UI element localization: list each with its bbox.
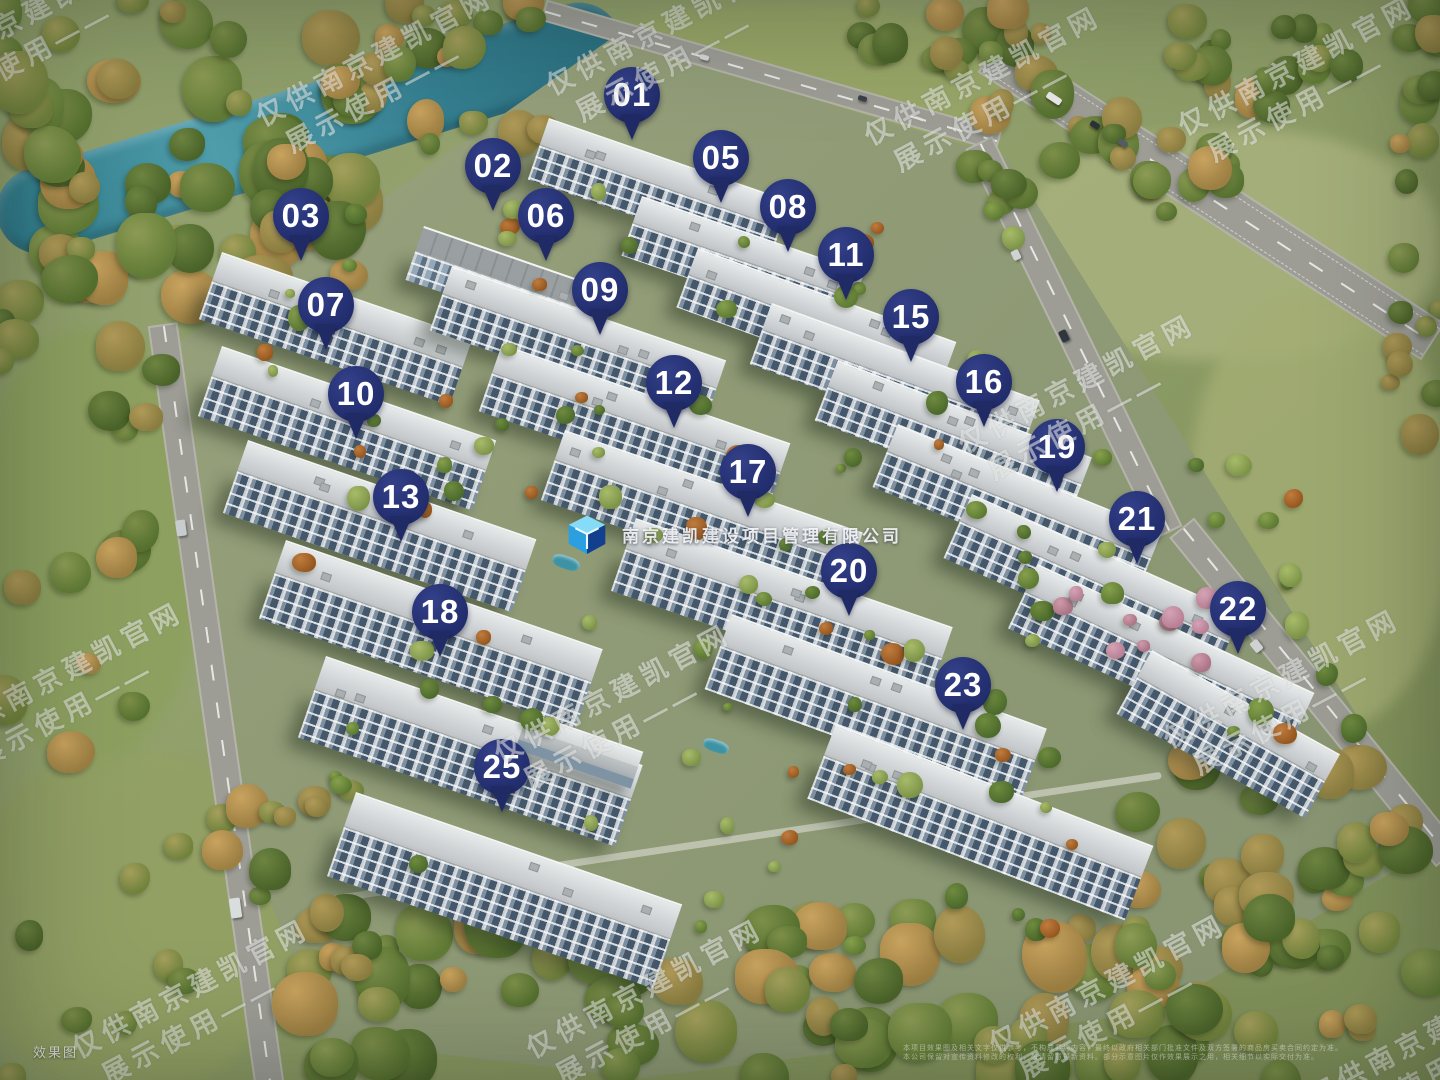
marker-tail bbox=[1046, 466, 1068, 492]
tree bbox=[592, 447, 605, 457]
tree bbox=[1208, 512, 1225, 528]
roof-unit bbox=[310, 398, 322, 409]
tree bbox=[854, 958, 903, 1004]
marker-tail bbox=[1227, 628, 1249, 654]
tree bbox=[843, 764, 856, 775]
tree bbox=[1106, 642, 1125, 659]
tree bbox=[723, 703, 733, 711]
tree bbox=[1123, 614, 1136, 626]
roof-unit bbox=[891, 682, 903, 693]
tree bbox=[864, 630, 875, 639]
tree bbox=[843, 936, 866, 955]
roof-unit bbox=[872, 381, 884, 392]
tree bbox=[202, 830, 243, 870]
roof-unit bbox=[682, 478, 694, 489]
tree bbox=[695, 920, 707, 932]
tree bbox=[117, 0, 149, 13]
roof-unit bbox=[868, 319, 880, 330]
tree bbox=[69, 172, 101, 203]
tree bbox=[160, 1, 187, 23]
tree bbox=[142, 354, 181, 386]
roof-unit bbox=[268, 289, 280, 300]
roof-unit bbox=[941, 453, 953, 464]
tree bbox=[268, 365, 279, 376]
tree bbox=[1248, 698, 1274, 725]
tree bbox=[1344, 1004, 1377, 1034]
building-marker-11[interactable]: 11 bbox=[818, 227, 874, 300]
tree bbox=[341, 954, 373, 982]
tree bbox=[756, 592, 772, 606]
tree bbox=[1306, 45, 1333, 72]
tree bbox=[1359, 912, 1400, 953]
tree bbox=[991, 169, 1027, 200]
roof-unit bbox=[465, 279, 477, 290]
marker-tail bbox=[621, 114, 643, 140]
building-marker-18[interactable]: 18 bbox=[412, 584, 468, 657]
tree bbox=[1031, 23, 1052, 44]
tree bbox=[1387, 351, 1413, 377]
tree bbox=[476, 630, 491, 645]
marker-tail bbox=[589, 309, 611, 335]
building-marker-16[interactable]: 16 bbox=[956, 354, 1012, 427]
building-marker-10[interactable]: 10 bbox=[328, 366, 384, 439]
disclaimer-text: 本项目效果图及相关文字仅供参考，不构成要约内容，最终以政府相关部门批准文件及双方… bbox=[903, 1044, 1439, 1062]
tree bbox=[116, 1011, 137, 1034]
tree bbox=[50, 552, 91, 593]
tree bbox=[345, 204, 367, 224]
company-name: 南京建凯建设项目管理有限公司 bbox=[622, 522, 902, 547]
tree bbox=[1254, 67, 1277, 92]
tree bbox=[42, 16, 80, 52]
tree bbox=[88, 391, 130, 431]
tree bbox=[830, 1008, 869, 1041]
tree bbox=[420, 133, 440, 155]
building-marker-21[interactable]: 21 bbox=[1109, 491, 1165, 564]
tree bbox=[720, 817, 735, 834]
tree bbox=[474, 437, 494, 454]
disclaimer-line1: 本项目效果图及相关文字仅供参考，不构成要约内容，最终以政府相关部门批准文件及双方… bbox=[903, 1044, 1439, 1053]
roof-unit bbox=[320, 571, 332, 582]
building-marker-22[interactable]: 22 bbox=[1210, 581, 1266, 654]
tree bbox=[1162, 606, 1183, 628]
marker-tail bbox=[710, 177, 732, 203]
tree bbox=[930, 36, 963, 69]
tree bbox=[439, 394, 453, 408]
roof-unit bbox=[804, 266, 816, 277]
roof-unit bbox=[482, 724, 494, 735]
marker-tail bbox=[491, 786, 513, 812]
tree bbox=[1093, 449, 1113, 466]
building-marker-19[interactable]: 19 bbox=[1029, 419, 1085, 492]
tree bbox=[989, 781, 1014, 803]
tree bbox=[1156, 202, 1177, 221]
building-marker-13[interactable]: 13 bbox=[373, 469, 429, 542]
tree bbox=[836, 464, 847, 473]
tree bbox=[302, 10, 359, 67]
tree bbox=[716, 300, 737, 318]
tree bbox=[599, 485, 622, 509]
tree bbox=[495, 418, 509, 431]
roof-unit bbox=[870, 676, 882, 687]
rendering-type-label: 效果图 bbox=[33, 1042, 78, 1061]
tree bbox=[498, 231, 517, 246]
roof-unit bbox=[689, 221, 701, 232]
tree bbox=[444, 481, 463, 501]
tree bbox=[1407, 123, 1439, 158]
roof-unit bbox=[782, 644, 794, 655]
building-marker-15[interactable]: 15 bbox=[883, 289, 939, 362]
tree bbox=[768, 861, 781, 873]
tree bbox=[116, 213, 177, 278]
tree bbox=[1192, 619, 1209, 634]
company-logo-icon bbox=[562, 510, 612, 558]
tree bbox=[440, 967, 466, 992]
tree bbox=[1069, 586, 1082, 600]
tree bbox=[1188, 458, 1204, 472]
marker-tail bbox=[952, 704, 974, 730]
tree bbox=[310, 1038, 354, 1077]
marker-tail bbox=[429, 631, 451, 657]
roof-unit bbox=[779, 315, 791, 326]
tree bbox=[4, 570, 41, 605]
tree bbox=[1168, 4, 1207, 39]
marker-tail bbox=[835, 274, 857, 300]
roof-unit bbox=[1069, 551, 1081, 562]
tree bbox=[358, 987, 401, 1022]
marker-tail bbox=[900, 336, 922, 362]
tree bbox=[168, 968, 199, 994]
tree bbox=[831, 1064, 858, 1080]
building-marker-23[interactable]: 23 bbox=[935, 657, 991, 730]
tree bbox=[129, 403, 163, 430]
tree bbox=[292, 553, 316, 572]
tree bbox=[274, 807, 296, 826]
tree bbox=[437, 457, 452, 472]
roof-unit bbox=[414, 336, 426, 347]
building-marker-05[interactable]: 05 bbox=[693, 130, 749, 203]
marker-tail bbox=[345, 413, 367, 439]
building-marker-06[interactable]: 06 bbox=[518, 188, 574, 261]
tree bbox=[501, 973, 539, 1007]
tree bbox=[765, 967, 809, 1012]
tree bbox=[1330, 49, 1363, 83]
tree bbox=[788, 766, 799, 777]
tree bbox=[1110, 146, 1136, 170]
roof-unit bbox=[569, 447, 581, 458]
roof-unit bbox=[617, 344, 629, 355]
tree bbox=[844, 448, 862, 467]
roof-unit bbox=[436, 344, 448, 355]
tree bbox=[1191, 653, 1211, 673]
marker-tail bbox=[535, 235, 557, 261]
tree bbox=[571, 345, 584, 356]
tree bbox=[310, 894, 343, 932]
marker-tail bbox=[777, 226, 799, 252]
marker-tail bbox=[1126, 538, 1148, 564]
tree bbox=[584, 815, 598, 831]
tree bbox=[1271, 15, 1296, 39]
tree bbox=[420, 679, 440, 699]
roof-unit bbox=[594, 150, 606, 161]
tree bbox=[1401, 414, 1439, 456]
tree bbox=[1285, 612, 1309, 639]
tree bbox=[591, 183, 607, 201]
tree bbox=[412, 5, 437, 27]
tree bbox=[1430, 300, 1440, 317]
roof-unit bbox=[354, 693, 366, 704]
roof-unit bbox=[449, 440, 461, 451]
roof-unit bbox=[1047, 545, 1059, 556]
tree bbox=[1253, 91, 1290, 123]
tree bbox=[1243, 894, 1295, 943]
tree bbox=[0, 1063, 26, 1080]
tree bbox=[934, 905, 985, 963]
tree bbox=[0, 0, 22, 32]
vehicle bbox=[175, 519, 187, 536]
tree bbox=[1164, 42, 1197, 70]
tree bbox=[621, 237, 638, 255]
tree bbox=[520, 708, 543, 732]
roof-unit bbox=[1224, 706, 1237, 718]
tree bbox=[532, 278, 547, 290]
tree bbox=[1144, 960, 1175, 991]
tree bbox=[1388, 301, 1413, 324]
building-marker-07[interactable]: 07 bbox=[298, 277, 354, 350]
tree bbox=[1137, 640, 1150, 652]
tree bbox=[1101, 582, 1124, 604]
tree bbox=[180, 163, 235, 212]
marker-tail bbox=[290, 235, 312, 261]
tree bbox=[257, 344, 272, 360]
tree bbox=[351, 1027, 410, 1080]
tree bbox=[1053, 597, 1074, 615]
tree bbox=[1115, 923, 1157, 968]
tree bbox=[989, 89, 1014, 118]
roof-unit bbox=[557, 290, 569, 301]
tree bbox=[606, 994, 644, 1028]
tree bbox=[1417, 71, 1440, 100]
tree bbox=[285, 289, 295, 297]
tree bbox=[1109, 990, 1165, 1038]
building-marker-17[interactable]: 17 bbox=[720, 444, 776, 517]
tree bbox=[1157, 127, 1186, 153]
tree bbox=[995, 748, 1011, 762]
tree bbox=[97, 59, 138, 99]
tree bbox=[675, 1000, 737, 1062]
roof-unit bbox=[968, 467, 980, 478]
tree bbox=[1395, 169, 1418, 193]
company-logo-row: 南京建凯建设项目管理有限公司 bbox=[562, 510, 902, 558]
roof-unit bbox=[606, 391, 618, 402]
tree bbox=[1416, 316, 1437, 337]
marker-tail bbox=[482, 185, 504, 211]
tree bbox=[1279, 563, 1302, 587]
tree bbox=[272, 972, 337, 1036]
tree bbox=[1388, 243, 1419, 272]
building-marker-09[interactable]: 09 bbox=[572, 262, 628, 335]
tree bbox=[1390, 134, 1410, 152]
building-marker-25[interactable]: 25 bbox=[474, 739, 530, 812]
tree bbox=[347, 486, 370, 512]
tree bbox=[738, 236, 750, 248]
tree bbox=[582, 615, 597, 630]
tree bbox=[120, 863, 150, 895]
tree bbox=[354, 445, 366, 458]
tree bbox=[881, 643, 904, 666]
tree bbox=[440, 0, 473, 27]
building-marker-12[interactable]: 12 bbox=[646, 355, 702, 428]
tree bbox=[501, 343, 517, 356]
tree bbox=[1025, 634, 1040, 648]
tree bbox=[1319, 1010, 1345, 1038]
tree bbox=[525, 486, 537, 499]
tree bbox=[945, 883, 968, 909]
disclaimer-line2: 本公司保留对宣传资料修改的权利，敬请留意最新资料。部分示意图片仅作效果展示之用，… bbox=[903, 1053, 1439, 1062]
tree bbox=[848, 697, 862, 713]
building-marker-02[interactable]: 02 bbox=[465, 138, 521, 211]
tree bbox=[459, 111, 488, 135]
tree bbox=[1166, 984, 1223, 1035]
tree bbox=[1030, 601, 1053, 621]
marker-tail bbox=[315, 324, 337, 350]
tree bbox=[1401, 949, 1440, 996]
roof-unit bbox=[641, 905, 653, 916]
tree bbox=[966, 501, 987, 519]
tree bbox=[1018, 568, 1039, 590]
tree bbox=[556, 406, 575, 424]
tree bbox=[934, 439, 944, 449]
tree bbox=[872, 23, 908, 63]
tree bbox=[809, 953, 856, 992]
tree bbox=[409, 855, 427, 872]
tree bbox=[987, 0, 1029, 29]
tree bbox=[164, 833, 194, 860]
tree bbox=[1017, 525, 1031, 540]
tree bbox=[61, 1007, 91, 1032]
roof-unit bbox=[521, 634, 533, 645]
tree bbox=[1241, 834, 1284, 878]
tree bbox=[76, 653, 101, 674]
tree bbox=[575, 392, 588, 403]
tree bbox=[1188, 146, 1232, 191]
tree bbox=[979, 41, 1003, 64]
tree bbox=[704, 891, 724, 908]
tree bbox=[1273, 723, 1297, 744]
tree bbox=[1018, 551, 1032, 564]
roof-unit bbox=[462, 529, 474, 540]
building-marker-08[interactable]: 08 bbox=[760, 179, 816, 252]
tree bbox=[96, 537, 137, 578]
marker-tail bbox=[663, 402, 685, 428]
building-marker-03[interactable]: 03 bbox=[273, 188, 329, 261]
tree bbox=[249, 848, 291, 890]
tree bbox=[321, 66, 359, 99]
tree bbox=[15, 920, 44, 951]
roof-unit bbox=[706, 270, 718, 281]
tree bbox=[682, 749, 701, 766]
tree bbox=[781, 830, 798, 844]
roof-unit bbox=[803, 330, 815, 341]
tree bbox=[483, 696, 501, 713]
tree bbox=[1040, 919, 1060, 938]
tree bbox=[739, 575, 759, 594]
tree bbox=[897, 772, 922, 799]
tree bbox=[305, 796, 327, 817]
tree bbox=[41, 255, 99, 303]
roof-unit bbox=[528, 862, 540, 873]
tree bbox=[1317, 945, 1343, 969]
tree bbox=[1038, 747, 1061, 768]
tree bbox=[226, 90, 252, 116]
building-marker-01[interactable]: 01 bbox=[604, 67, 660, 140]
tree bbox=[96, 321, 145, 371]
tree bbox=[47, 731, 96, 773]
tree bbox=[1258, 512, 1279, 529]
marker-tail bbox=[390, 516, 412, 542]
marker-tail bbox=[973, 401, 995, 427]
tree bbox=[169, 128, 204, 161]
tree bbox=[926, 391, 949, 415]
roof-unit bbox=[562, 888, 574, 899]
tree bbox=[1226, 454, 1251, 476]
roof-unit bbox=[318, 482, 330, 493]
marker-tail bbox=[838, 590, 860, 616]
tree bbox=[210, 21, 247, 58]
site-plan-rendering: 0102030506070809101112131516171819202122… bbox=[0, 0, 1440, 1080]
tree bbox=[601, 1048, 641, 1080]
tree bbox=[872, 770, 888, 784]
tree bbox=[1002, 226, 1025, 250]
